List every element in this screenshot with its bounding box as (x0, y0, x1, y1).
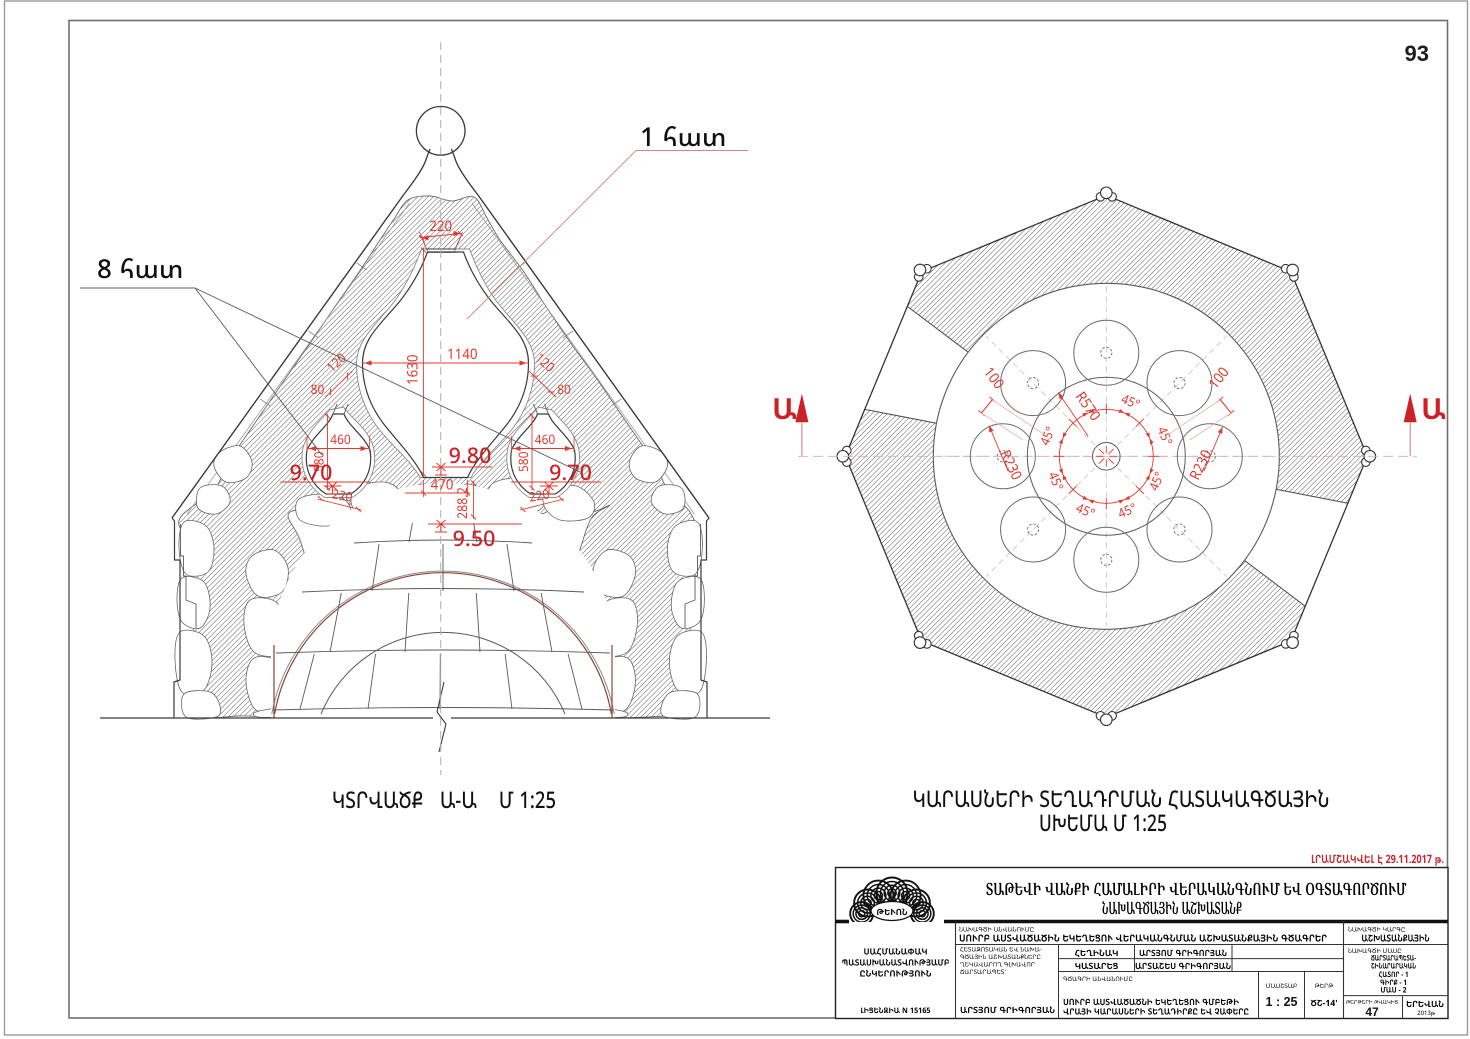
svg-text:1 : 25: 1 : 25 (1266, 995, 1298, 1009)
svg-text:47: 47 (1365, 1005, 1379, 1019)
svg-text:93: 93 (1405, 41, 1429, 66)
